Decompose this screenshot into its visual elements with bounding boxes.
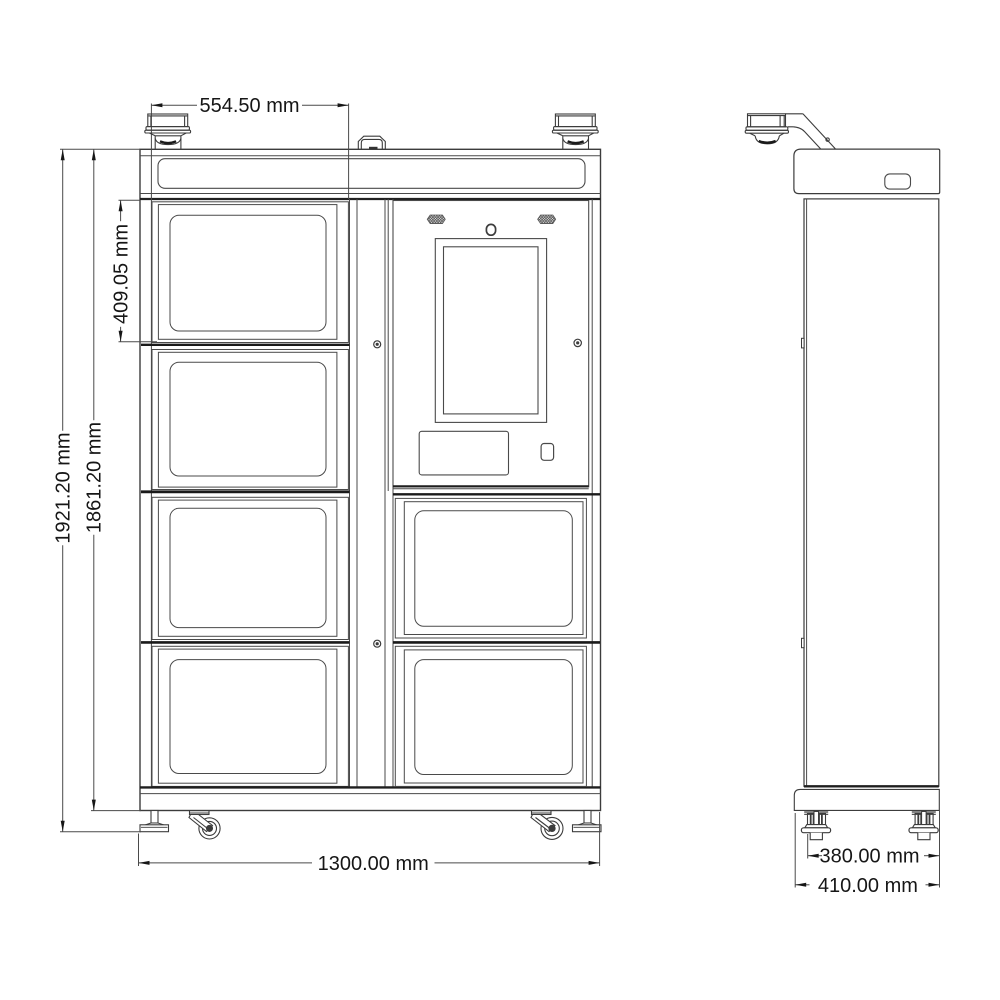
svg-text:1921.20 mm: 1921.20 mm [53, 432, 75, 543]
svg-text:1861.20 mm: 1861.20 mm [84, 422, 106, 533]
svg-text:409.05 mm: 409.05 mm [111, 224, 133, 324]
svg-text:554.50 mm: 554.50 mm [199, 95, 299, 117]
svg-text:1300.00 mm: 1300.00 mm [318, 853, 429, 875]
svg-text:410.00 mm: 410.00 mm [818, 875, 918, 897]
svg-text:380.00 mm: 380.00 mm [819, 846, 919, 868]
